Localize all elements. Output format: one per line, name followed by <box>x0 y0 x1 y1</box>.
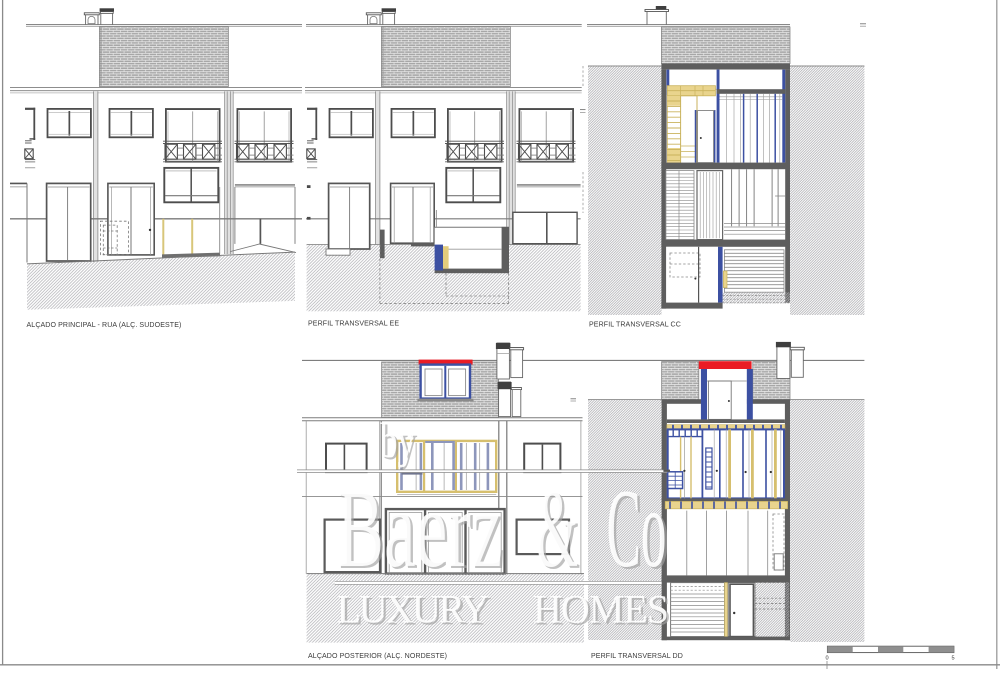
svg-text:0: 0 <box>826 656 829 662</box>
svg-text:PERFIL TRANSVERSAL EE: PERFIL TRANSVERSAL EE <box>308 321 399 328</box>
svg-text:5: 5 <box>952 656 955 662</box>
svg-text:HOMES: HOMES <box>533 587 669 632</box>
svg-text:LUXURY: LUXURY <box>337 587 490 632</box>
svg-text:Co: Co <box>607 467 667 591</box>
svg-text:ALÇADO POSTERIOR (ALÇ. NORDEST: ALÇADO POSTERIOR (ALÇ. NORDESTE) <box>308 653 447 660</box>
svg-text:by: by <box>380 412 415 468</box>
svg-text:PERFIL TRANSVERSAL CC: PERFIL TRANSVERSAL CC <box>589 322 681 329</box>
svg-text:&: & <box>536 467 578 591</box>
svg-text:Baerz: Baerz <box>337 467 503 591</box>
svg-text:ALÇADO PRINCIPAL - RUA (ALÇ. S: ALÇADO PRINCIPAL - RUA (ALÇ. SUDOESTE) <box>27 322 182 329</box>
svg-text:PERFIL TRANSVERSAL DD: PERFIL TRANSVERSAL DD <box>591 653 683 660</box>
